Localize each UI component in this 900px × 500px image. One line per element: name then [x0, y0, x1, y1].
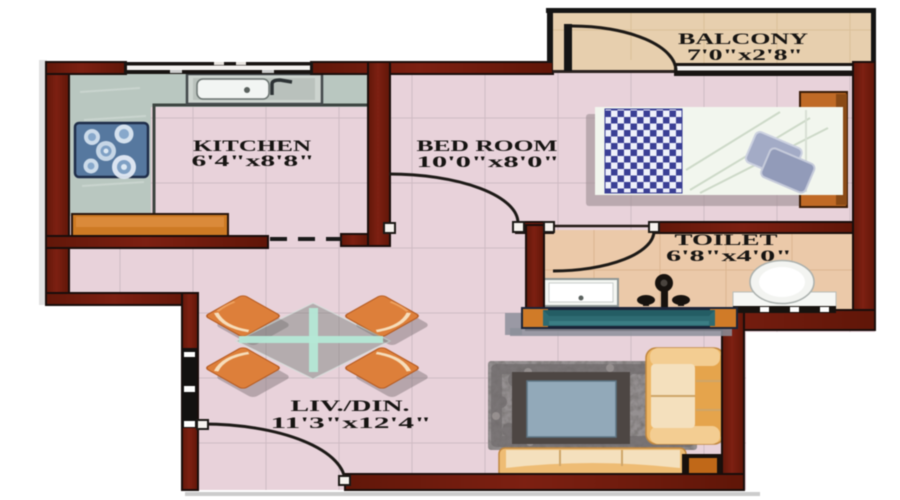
svg-text:10'0"x8'0": 10'0"x8'0"	[417, 154, 560, 171]
svg-text:7'0"x2'8": 7'0"x2'8"	[687, 47, 803, 64]
svg-text:TOILET: TOILET	[675, 232, 779, 249]
svg-text:6'4"x8'8": 6'4"x8'8"	[192, 153, 315, 170]
svg-text:BALCONY: BALCONY	[678, 31, 809, 48]
svg-text:11'3"x12'4": 11'3"x12'4"	[271, 415, 432, 432]
svg-text:LIV./DIN.: LIV./DIN.	[291, 398, 410, 415]
svg-text:BED ROOM: BED ROOM	[417, 138, 558, 155]
svg-text:6'8"x4'0": 6'8"x4'0"	[666, 248, 792, 265]
